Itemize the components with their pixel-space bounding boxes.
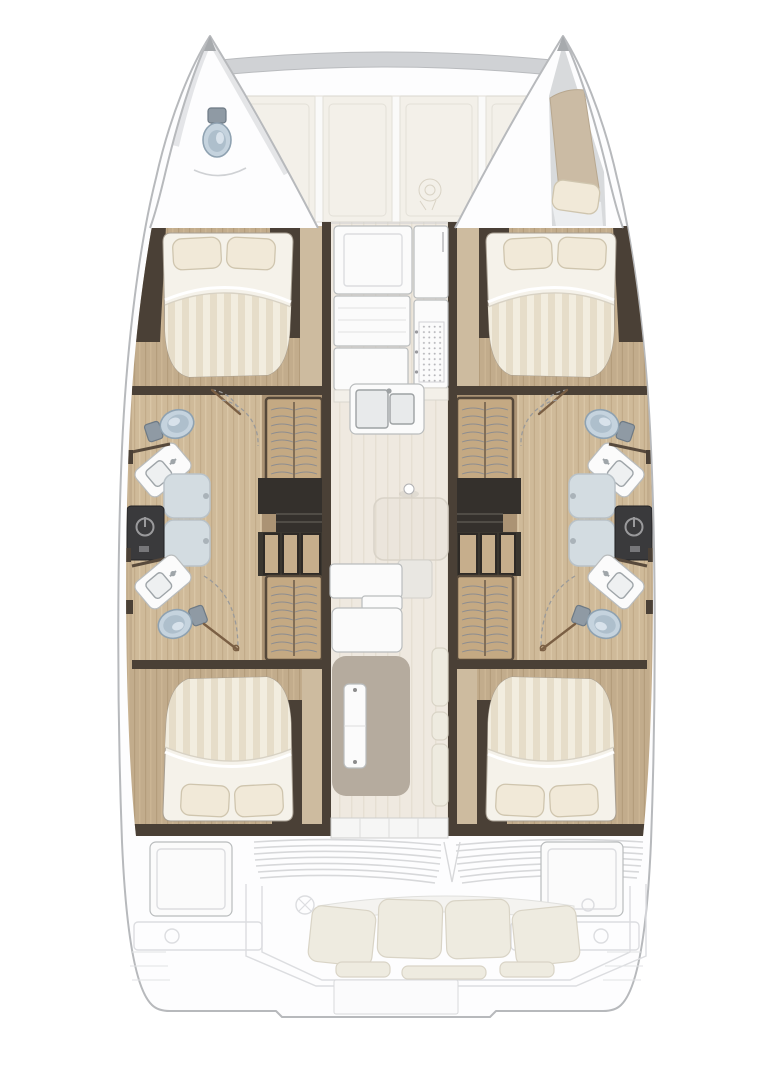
transom-platform [334, 980, 458, 1014]
appliance-locker [127, 506, 164, 560]
bench-cushion [307, 905, 377, 967]
fwd-bulkhead [132, 386, 332, 395]
settee-seat [332, 608, 402, 652]
hull-fitting [125, 600, 133, 614]
double-bed-forward [163, 233, 293, 377]
aft-cabin-shelf [302, 669, 324, 836]
panel-divider [315, 96, 323, 222]
stove-grid [419, 322, 444, 382]
bench-footpad [336, 962, 390, 977]
storage-locker-port [150, 842, 232, 916]
double-bed-aft [163, 677, 293, 821]
bench-cushion [511, 905, 581, 967]
aft-bulkhead [132, 660, 332, 669]
hanging-locker-forward [266, 398, 322, 482]
bench-footpad [500, 962, 554, 977]
bench-cushion [445, 899, 511, 959]
side-seat-cushion [432, 648, 448, 706]
galley-counter [334, 226, 412, 294]
shower-knob [203, 538, 209, 544]
side-seat-cushion [432, 744, 448, 806]
stove-knob [415, 330, 418, 333]
mast-step [404, 484, 414, 494]
faucet [386, 388, 391, 393]
fwd-cabin-shelf [300, 226, 324, 394]
shower-stall [164, 474, 210, 566]
catamaran-floor-plan: Catamaran deck and accommodation floor p… [0, 0, 771, 1080]
galley-sink-unit [350, 384, 424, 434]
stove-knob [415, 350, 418, 353]
stair-tread [283, 534, 298, 574]
settee-corner [398, 560, 432, 598]
stove-knob [415, 370, 418, 373]
galley-appliance-front [334, 296, 410, 346]
cockpit-bulkhead [132, 824, 331, 836]
hanging-locker-aft [266, 576, 322, 660]
port-hull-interior [118, 222, 333, 838]
shower-knob [203, 493, 209, 499]
starboard-hull-interior [446, 222, 661, 838]
catamaran-floor-plan-page: Catamaran deck and accommodation floor p… [0, 0, 771, 1080]
sink-basin [390, 394, 414, 424]
leaf-latch [353, 760, 357, 764]
berth-cushion [551, 179, 601, 215]
panel-divider [392, 96, 400, 222]
leaf-latch [353, 688, 357, 692]
saloon [330, 222, 448, 838]
sink-basin [356, 390, 388, 428]
stair-tread [302, 534, 320, 574]
side-seat-cushion [432, 712, 448, 740]
settee-seat [330, 564, 402, 598]
inner-hull-wall [322, 222, 331, 836]
bench-cushion [377, 899, 443, 959]
saloon-table-outline [374, 498, 448, 560]
bench-footpad [402, 966, 486, 979]
stair-tread [264, 534, 279, 574]
